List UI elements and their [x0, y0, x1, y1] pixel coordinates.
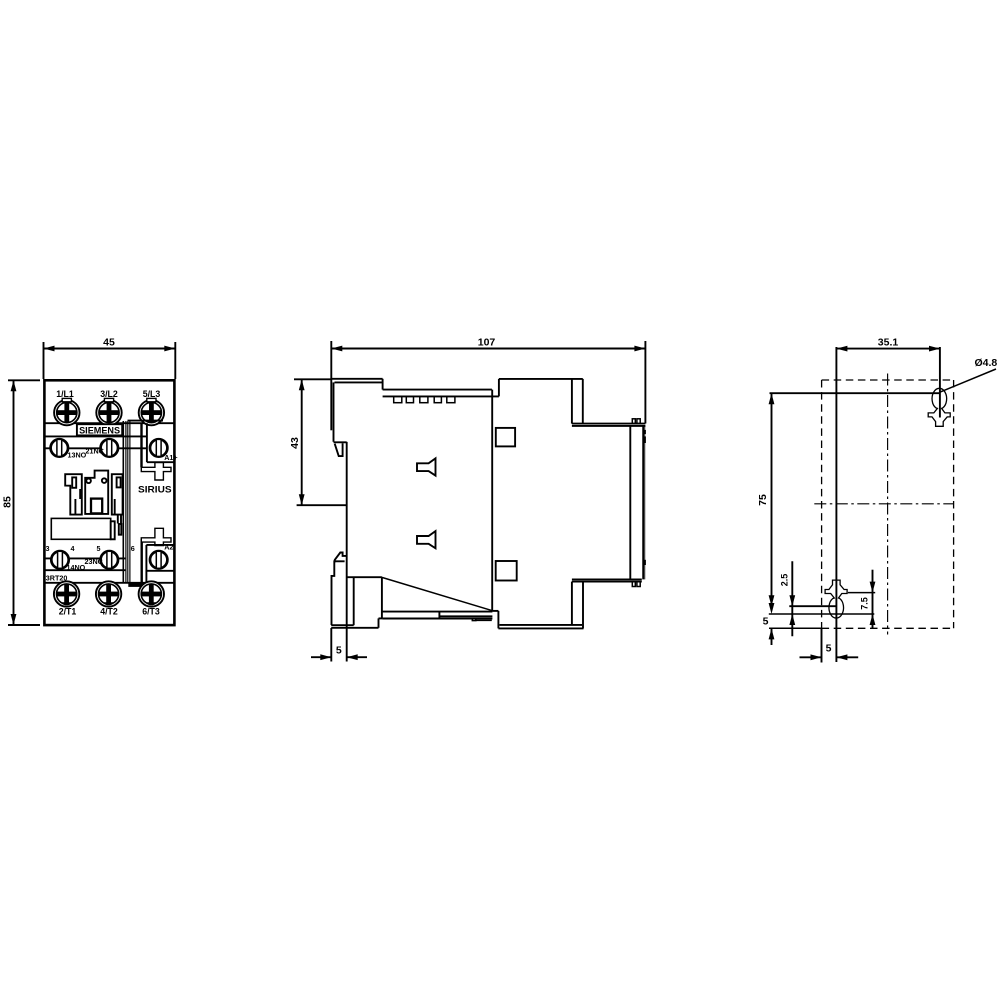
svg-text:7.5: 7.5 [859, 597, 869, 610]
svg-text:5: 5 [336, 645, 342, 657]
svg-text:5: 5 [826, 643, 832, 655]
svg-text:5/L3: 5/L3 [143, 389, 161, 399]
svg-text:43: 43 [289, 437, 301, 449]
svg-text:3: 3 [46, 544, 50, 553]
svg-text:SIEMENS: SIEMENS [79, 425, 120, 435]
svg-text:5: 5 [763, 616, 769, 628]
svg-text:2/T1: 2/T1 [59, 607, 77, 617]
svg-text:1/L1: 1/L1 [56, 389, 74, 399]
svg-text:107: 107 [478, 337, 496, 349]
svg-text:85: 85 [2, 496, 14, 508]
svg-text:4/T2: 4/T2 [100, 607, 118, 617]
svg-text:5: 5 [97, 544, 101, 553]
svg-text:14NO: 14NO [67, 563, 86, 572]
svg-text:3/L2: 3/L2 [100, 389, 118, 399]
svg-text:21NC: 21NC [86, 446, 104, 455]
svg-text:45: 45 [103, 337, 115, 349]
svg-text:2.5: 2.5 [780, 574, 790, 587]
svg-text:13NO: 13NO [68, 451, 87, 460]
svg-text:6/T3: 6/T3 [142, 607, 160, 617]
svg-text:A2-: A2- [164, 543, 176, 552]
svg-text:6: 6 [131, 544, 135, 553]
svg-text:A1+: A1+ [164, 453, 177, 462]
svg-text:75: 75 [757, 494, 769, 506]
svg-text:SIRIUS: SIRIUS [138, 485, 172, 495]
svg-text:Ø4.8: Ø4.8 [975, 357, 998, 369]
svg-text:23NC: 23NC [85, 557, 103, 566]
svg-text:35.1: 35.1 [878, 337, 899, 349]
svg-text:4: 4 [71, 544, 75, 553]
